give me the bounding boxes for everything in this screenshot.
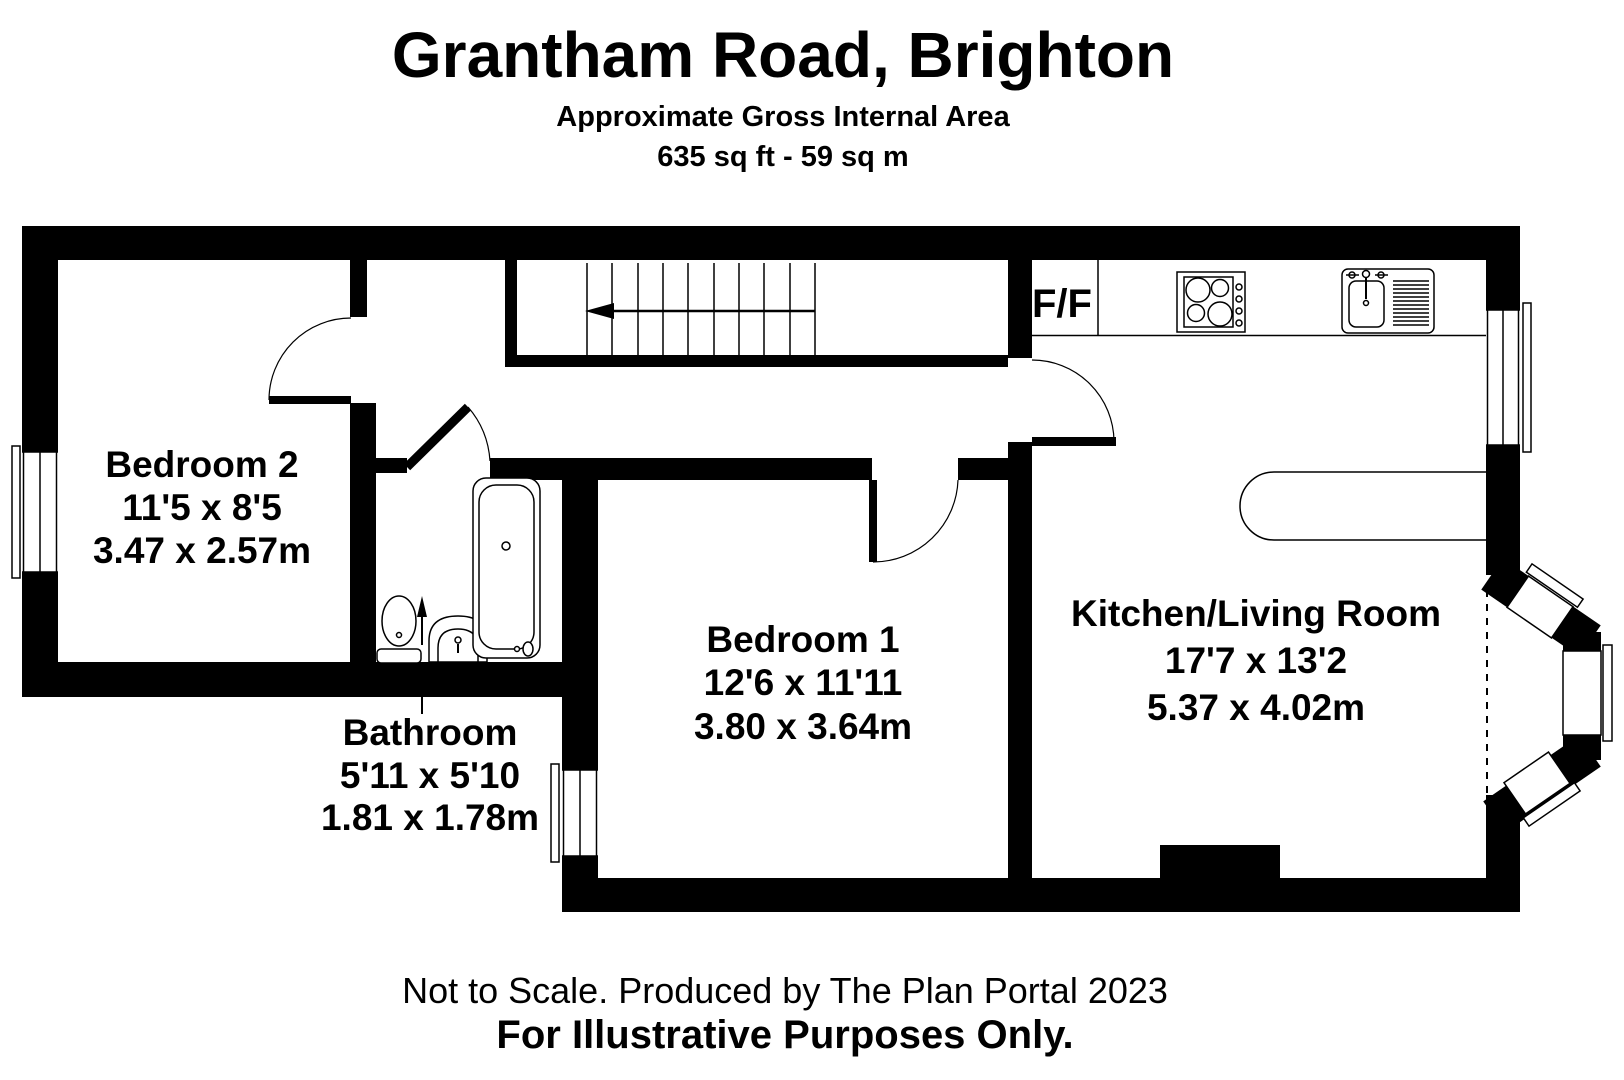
- bedroom1-window: [551, 764, 598, 862]
- bathroom-arrow-icon: [417, 596, 427, 645]
- sink-icon: [1342, 269, 1434, 333]
- bay-window-middle: [1563, 645, 1612, 741]
- footer-disclaimer: Not to Scale. Produced by The Plan Porta…: [402, 970, 1168, 1011]
- floor-plan: Grantham Road, Brighton Approximate Gros…: [0, 0, 1624, 1080]
- bedroom1-label: Bedroom 1 12'6 x 11'11 3.80 x 3.64m: [694, 619, 912, 747]
- bedroom2-imperial: 11'5 x 8'5: [122, 487, 282, 528]
- kitchen-right-window: [1486, 303, 1531, 452]
- staircase: [585, 263, 815, 355]
- bedroom2-door: [269, 318, 351, 404]
- bathroom-label: Bathroom 5'11 x 5'10 1.81 x 1.78m: [321, 712, 539, 838]
- footer-illustrative: For Illustrative Purposes Only.: [496, 1013, 1073, 1057]
- kitchen-living-imperial: 17'7 x 13'2: [1165, 640, 1347, 681]
- bedroom1-name: Bedroom 1: [706, 619, 899, 660]
- kitchen-peninsula: [1240, 472, 1487, 540]
- hob-icon: [1177, 272, 1245, 332]
- toilet-icon: [377, 596, 421, 663]
- bathroom-name: Bathroom: [343, 712, 518, 753]
- stairs-direction-arrow: [585, 303, 815, 319]
- bedroom1-door: [869, 480, 958, 562]
- bedroom1-metric: 3.80 x 3.64m: [694, 706, 912, 747]
- bathroom-imperial: 5'11 x 5'10: [340, 755, 520, 796]
- bedroom2-label: Bedroom 2 11'5 x 8'5 3.47 x 2.57m: [93, 444, 311, 571]
- bathroom-door: [407, 407, 490, 467]
- bedroom2-metric: 3.47 x 2.57m: [93, 530, 311, 571]
- bedroom1-imperial: 12'6 x 11'11: [704, 662, 903, 703]
- bathtub-icon: [473, 478, 540, 658]
- bathroom-metric: 1.81 x 1.78m: [321, 797, 539, 838]
- bedroom2-name: Bedroom 2: [105, 444, 298, 485]
- kitchen-living-name: Kitchen/Living Room: [1071, 593, 1441, 634]
- kitchen-door: [1032, 360, 1116, 446]
- subtitle-area: Approximate Gross Internal Area: [556, 101, 1010, 133]
- subtitle-size: 635 sq ft - 59 sq m: [657, 141, 908, 173]
- chimney-breast: [1160, 845, 1280, 880]
- page-title: Grantham Road, Brighton: [392, 19, 1174, 91]
- fridge-freezer-label: F/F: [1032, 282, 1092, 326]
- kitchen-living-metric: 5.37 x 4.02m: [1147, 687, 1365, 728]
- kitchen-living-label: Kitchen/Living Room 17'7 x 13'2 5.37 x 4…: [1071, 593, 1441, 728]
- bedroom2-window: [12, 446, 58, 578]
